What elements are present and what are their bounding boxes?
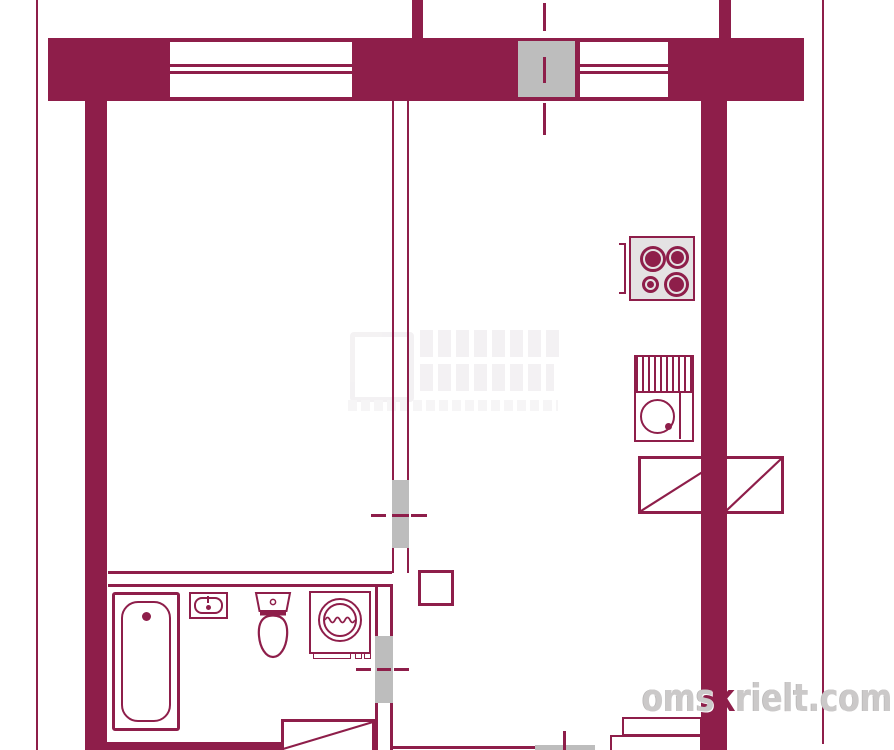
- column-icon: [418, 570, 454, 606]
- watermark-text-suffix: rielt.com: [736, 676, 893, 720]
- bathtub-icon: [112, 592, 180, 731]
- stove-burner: [664, 272, 689, 297]
- partition-wall-upper: [392, 101, 409, 480]
- washing-machine-icon: [309, 591, 371, 654]
- wash-basin-faucet: [207, 596, 209, 603]
- wash-basin-icon: [189, 592, 228, 619]
- sink-divider-line: [679, 393, 681, 439]
- floor-plan-canvas: omsкrielt.com: [0, 0, 894, 750]
- window-icon: [580, 42, 668, 97]
- wash-basin-drain: [206, 605, 211, 610]
- stove-burner: [640, 246, 666, 272]
- watermark-logo-subtext-line: [348, 400, 558, 411]
- watermark-logo-text-line: [420, 364, 554, 391]
- window-glazing-line: [580, 64, 668, 67]
- dish-drainer-hatch: [636, 357, 692, 393]
- washing-machine-drum: [323, 603, 357, 637]
- plot-boundary-right-line: [822, 0, 824, 744]
- stove-burner: [666, 246, 689, 269]
- axis-line-icon: [392, 514, 409, 517]
- exterior-wall-left: [85, 101, 107, 750]
- axis-line-icon: [377, 668, 391, 671]
- kitchen-sink-icon: [634, 355, 694, 442]
- axis-line-icon: [543, 103, 546, 135]
- exterior-wall-bottom: [85, 742, 281, 750]
- bathroom-wall-top-line: [108, 584, 392, 587]
- watermark-text-highlight: к: [714, 676, 735, 720]
- axis-line-icon: [543, 3, 546, 31]
- stove-burner: [642, 276, 659, 293]
- exterior-wall-top: [48, 38, 804, 101]
- window-glazing-line: [580, 71, 668, 74]
- bathroom-wall-top-line: [108, 571, 392, 574]
- stove-bracket-tick: [619, 292, 626, 294]
- toilet-icon: [254, 592, 292, 659]
- axis-line-icon: [356, 668, 371, 671]
- axis-line-icon: [543, 57, 546, 83]
- axis-line-icon: [563, 731, 566, 750]
- washing-machine-foot: [364, 653, 371, 659]
- wall-stub-left: [412, 0, 423, 40]
- axis-line-icon: [394, 668, 409, 671]
- watermark-logo-text-line: [420, 330, 562, 357]
- stove-bracket-tick: [619, 243, 626, 245]
- axis-line-icon: [411, 514, 427, 517]
- window-glazing-line: [170, 71, 352, 74]
- watermark-text-prefix: oms: [642, 676, 714, 720]
- wardrobe-icon: [281, 719, 375, 750]
- entry-steps-icon: [610, 735, 702, 750]
- plot-boundary-left-line: [36, 0, 38, 750]
- partition-wall-lower: [392, 548, 409, 573]
- washing-machine-foot: [355, 653, 362, 659]
- sink-drain: [665, 423, 672, 430]
- site-watermark: omsкrielt.com: [642, 676, 893, 720]
- axis-line-icon: [371, 514, 386, 517]
- center-watermark-logo: [348, 328, 563, 414]
- window-glazing-line: [170, 64, 352, 67]
- interior-wall-right: [701, 101, 727, 750]
- washing-machine-foot: [313, 653, 351, 659]
- bathtub-drain: [142, 612, 151, 621]
- bottom-wall-line: [393, 746, 535, 749]
- ventilation-shaft-icon: [518, 41, 575, 97]
- stove-bracket: [624, 243, 626, 294]
- window-icon: [170, 42, 352, 97]
- gas-stove-icon: [629, 236, 695, 301]
- wall-stub-right: [719, 0, 731, 40]
